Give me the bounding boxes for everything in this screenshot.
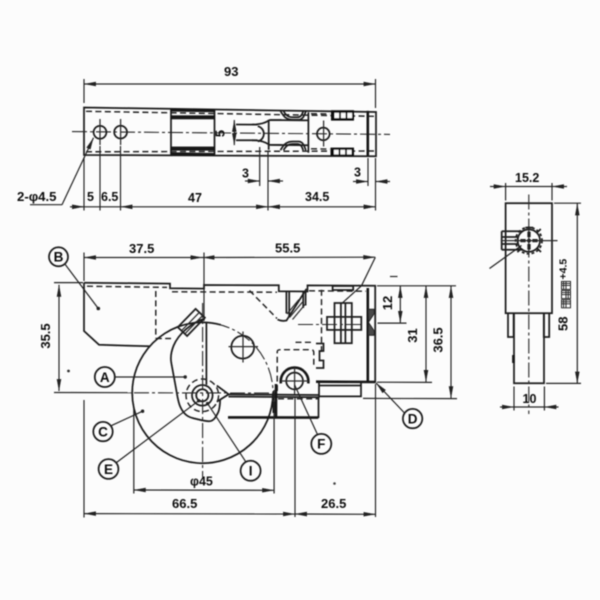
svg-text:A: A [100,370,110,385]
svg-text:47: 47 [188,191,202,205]
svg-text:5: 5 [213,130,228,137]
svg-text:I: I [249,464,253,479]
svg-text:93: 93 [224,64,238,79]
svg-text:F: F [317,437,325,452]
svg-text:φ45: φ45 [190,475,213,489]
svg-text:37.5: 37.5 [129,241,154,256]
svg-text:E: E [104,462,113,477]
svg-text:58: 58 [556,317,571,331]
svg-text:D: D [408,411,418,426]
svg-text:6.5: 6.5 [101,190,118,204]
svg-text:B: B [54,250,64,265]
svg-text:5: 5 [87,190,94,204]
svg-text:36.5: 36.5 [431,327,446,352]
svg-text:2-φ4.5: 2-φ4.5 [17,189,57,204]
svg-text:26.5: 26.5 [321,496,346,511]
svg-text:10: 10 [523,392,537,406]
svg-text:+4.5: +4.5 [558,259,570,280]
svg-text:55.5: 55.5 [275,241,300,256]
svg-text:31: 31 [405,328,420,342]
svg-text:12: 12 [380,296,395,310]
svg-text:15.2: 15.2 [515,171,539,185]
svg-text:3: 3 [242,167,249,181]
svg-text:66.5: 66.5 [172,496,197,511]
svg-text:35.5: 35.5 [38,323,53,348]
svg-text:34.5: 34.5 [305,190,329,204]
svg-text:3: 3 [354,166,361,180]
svg-text:C: C [98,424,108,439]
